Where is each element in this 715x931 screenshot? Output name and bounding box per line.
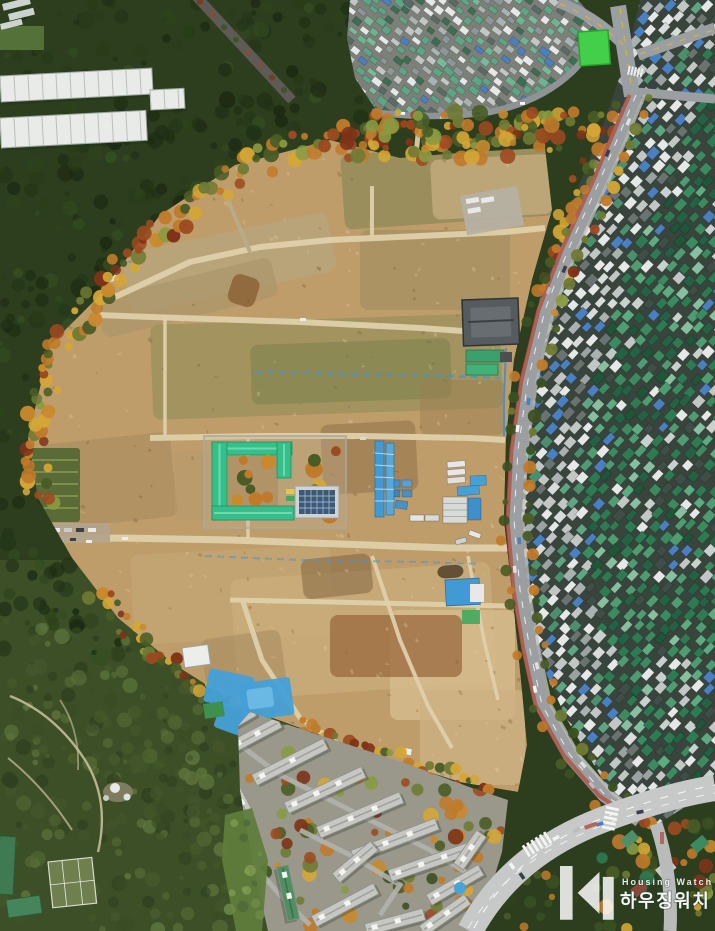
watermark-brand-en: Housing Watch — [622, 877, 713, 887]
school-building — [204, 436, 346, 528]
watermark-brand-ko: 하우징워치 — [620, 890, 710, 911]
scene-layers — [0, 0, 715, 931]
aerial-photo: Housing Watch 하우징워치 — [0, 0, 715, 931]
aerial-photo-stage: Housing Watch 하우징워치 — [0, 0, 715, 931]
